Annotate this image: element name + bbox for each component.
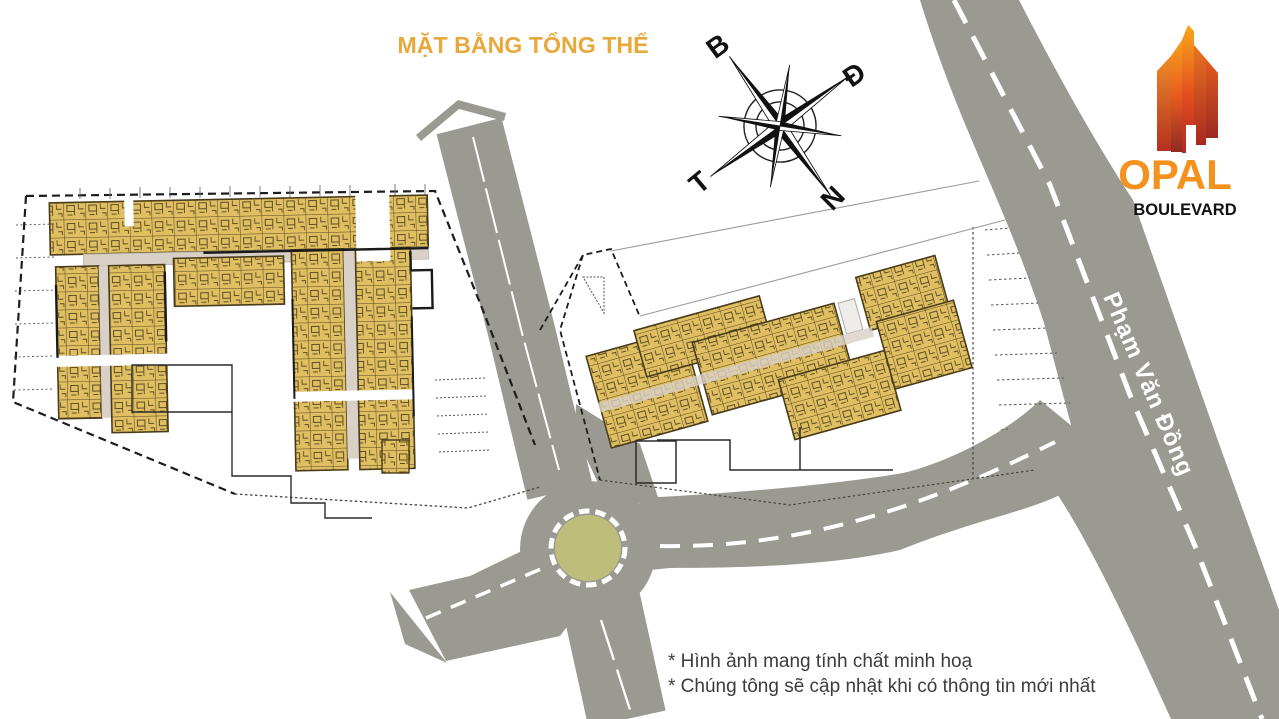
svg-text:BOULEVARD: BOULEVARD xyxy=(1133,201,1236,219)
svg-text:* Chúng tông sẽ cập nhật khi c: * Chúng tông sẽ cập nhật khi có thông ti… xyxy=(668,676,1096,697)
svg-text:MẶT BẰNG TỔNG THỂ: MẶT BẰNG TỔNG THỂ xyxy=(397,31,648,58)
svg-text:OPAL: OPAL xyxy=(1118,151,1232,198)
svg-text:* Hình ảnh mang tính chất minh: * Hình ảnh mang tính chất minh hoạ xyxy=(668,651,973,672)
